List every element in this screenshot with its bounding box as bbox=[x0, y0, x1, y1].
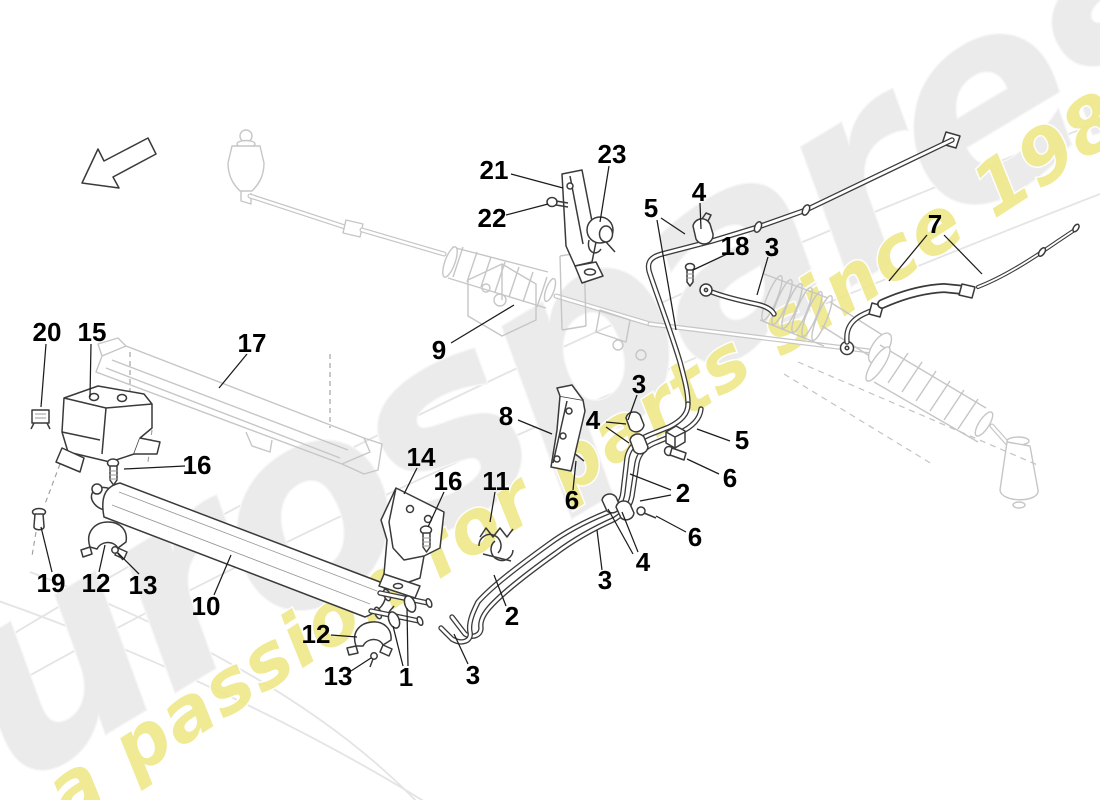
part-callout-1[interactable]: 1 bbox=[399, 664, 413, 690]
part-callout-9[interactable]: 9 bbox=[432, 337, 446, 363]
part-callout-22[interactable]: 22 bbox=[478, 205, 507, 231]
part-callout-3[interactable]: 3 bbox=[632, 371, 646, 397]
part-callout-16[interactable]: 16 bbox=[183, 452, 212, 478]
part-callout-15[interactable]: 15 bbox=[78, 319, 107, 345]
part-callout-2[interactable]: 2 bbox=[505, 603, 519, 629]
part-callout-8[interactable]: 8 bbox=[499, 403, 513, 429]
part-callout-4[interactable]: 4 bbox=[586, 407, 600, 433]
part-callout-10[interactable]: 10 bbox=[192, 593, 221, 619]
part-callout-3[interactable]: 3 bbox=[466, 662, 480, 688]
part-callout-14[interactable]: 14 bbox=[407, 444, 436, 470]
part-callout-16[interactable]: 16 bbox=[434, 468, 463, 494]
part-callout-20[interactable]: 20 bbox=[33, 319, 62, 345]
part-callout-7[interactable]: 7 bbox=[928, 211, 942, 237]
part-callout-18[interactable]: 18 bbox=[721, 233, 750, 259]
part-callout-4[interactable]: 4 bbox=[636, 549, 650, 575]
part-callout-13[interactable]: 13 bbox=[129, 572, 158, 598]
part-callout-23[interactable]: 23 bbox=[598, 141, 627, 167]
part-callout-4[interactable]: 4 bbox=[692, 179, 706, 205]
parts-diagram-page: eurospares a passion for parts since 198… bbox=[0, 0, 1100, 800]
part-callout-2[interactable]: 2 bbox=[676, 480, 690, 506]
part-callout-6[interactable]: 6 bbox=[723, 465, 737, 491]
part-callout-21[interactable]: 21 bbox=[480, 157, 509, 183]
part-callout-12[interactable]: 12 bbox=[302, 621, 331, 647]
part-callout-5[interactable]: 5 bbox=[644, 195, 658, 221]
part-callout-12[interactable]: 12 bbox=[82, 570, 111, 596]
part-callout-19[interactable]: 19 bbox=[37, 570, 66, 596]
part-callout-17[interactable]: 17 bbox=[238, 330, 267, 356]
part-callout-6[interactable]: 6 bbox=[565, 487, 579, 513]
part-callout-3[interactable]: 3 bbox=[598, 567, 612, 593]
part-callout-6[interactable]: 6 bbox=[688, 524, 702, 550]
part-callout-13[interactable]: 13 bbox=[324, 663, 353, 689]
part-callout-11[interactable]: 11 bbox=[482, 468, 510, 494]
part-callout-5[interactable]: 5 bbox=[735, 427, 749, 453]
callout-labels-layer: 2122234518372015179834562661416161143101… bbox=[0, 0, 1100, 800]
part-callout-3[interactable]: 3 bbox=[765, 234, 779, 260]
